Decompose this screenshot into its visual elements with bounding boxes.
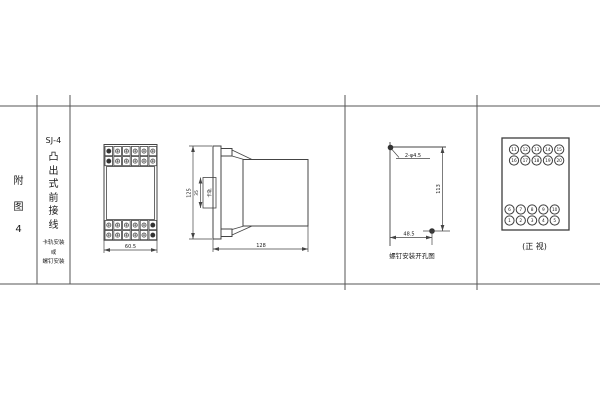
- terminal-number: 7: [519, 207, 522, 213]
- depth-dimension-label: 128: [256, 243, 266, 249]
- terminal-number: 3: [531, 218, 534, 224]
- front-plate: [213, 146, 221, 239]
- front-view-body: [107, 167, 155, 220]
- terminal-block-top: [105, 147, 157, 166]
- taper-line: [232, 156, 244, 160]
- terminal-number: 8: [531, 207, 534, 213]
- terminal-number: 17: [523, 158, 529, 164]
- relay-body: [243, 160, 308, 227]
- drawing-canvas: 60.5 卡轨 35 125: [0, 0, 600, 400]
- terminal-number: 18: [534, 158, 540, 164]
- taper-line: [232, 226, 244, 230]
- terminal-number: 5: [553, 218, 556, 224]
- terminal-number: 6: [508, 207, 511, 213]
- screw-filled: [107, 149, 111, 153]
- leader-line: [392, 150, 399, 158]
- height-dimension-label: 125: [187, 188, 193, 198]
- terminal-number: 2: [519, 218, 522, 224]
- terminal-number: 14: [545, 147, 551, 153]
- terminal-number: 20: [556, 158, 562, 164]
- terminal-number: 11: [511, 147, 517, 153]
- hole-spec-label: 2-φ4.5: [405, 153, 421, 159]
- drill-view: 2-φ4.5 113 48.5 螺钉安装开孔图: [388, 142, 450, 260]
- top-tab: [221, 149, 232, 157]
- terminal-number: 15: [556, 147, 562, 153]
- terminal-view-caption: (正 视): [522, 241, 547, 251]
- screw-filled: [151, 223, 155, 227]
- rail-dimension-label: 35: [194, 190, 200, 196]
- bottom-tab: [221, 229, 232, 237]
- terminal-number: 4: [542, 218, 545, 224]
- terminal-number: 1: [508, 218, 511, 224]
- taper-line: [232, 226, 252, 235]
- terminal-number: 19: [545, 158, 551, 164]
- terminal-number: 13: [534, 147, 540, 153]
- terminal-number: 12: [523, 147, 529, 153]
- screw-filled: [151, 233, 155, 237]
- drill-vertical-dimension-label: 113: [436, 184, 442, 194]
- mounting-hole: [388, 145, 394, 151]
- drill-view-caption: 螺钉安装开孔图: [389, 251, 435, 260]
- front-width-dimension-label: 60.5: [125, 244, 136, 250]
- side-view: 卡轨 35 125 128: [187, 146, 309, 252]
- terminal-number: 16: [511, 158, 517, 164]
- front-view: 60.5: [104, 145, 157, 254]
- taper-line: [232, 150, 252, 160]
- terminal-number: 9: [542, 207, 545, 213]
- terminal-view: 11 12 13 14 15 16 17 18 19 20 6 7 8 9 10…: [502, 138, 569, 251]
- table-grid: [0, 95, 600, 290]
- drill-horizontal-dimension-label: 48.5: [403, 232, 414, 238]
- technical-drawing-sheet: 附 图 4 SJ-4 凸 出 式 前 接 线 卡轨安装 或 螺钉安装: [0, 0, 600, 400]
- terminal-block-bottom: [105, 221, 157, 240]
- screw-filled: [107, 159, 111, 163]
- terminal-number: 10: [552, 207, 558, 213]
- rail-label: 卡轨: [206, 188, 213, 197]
